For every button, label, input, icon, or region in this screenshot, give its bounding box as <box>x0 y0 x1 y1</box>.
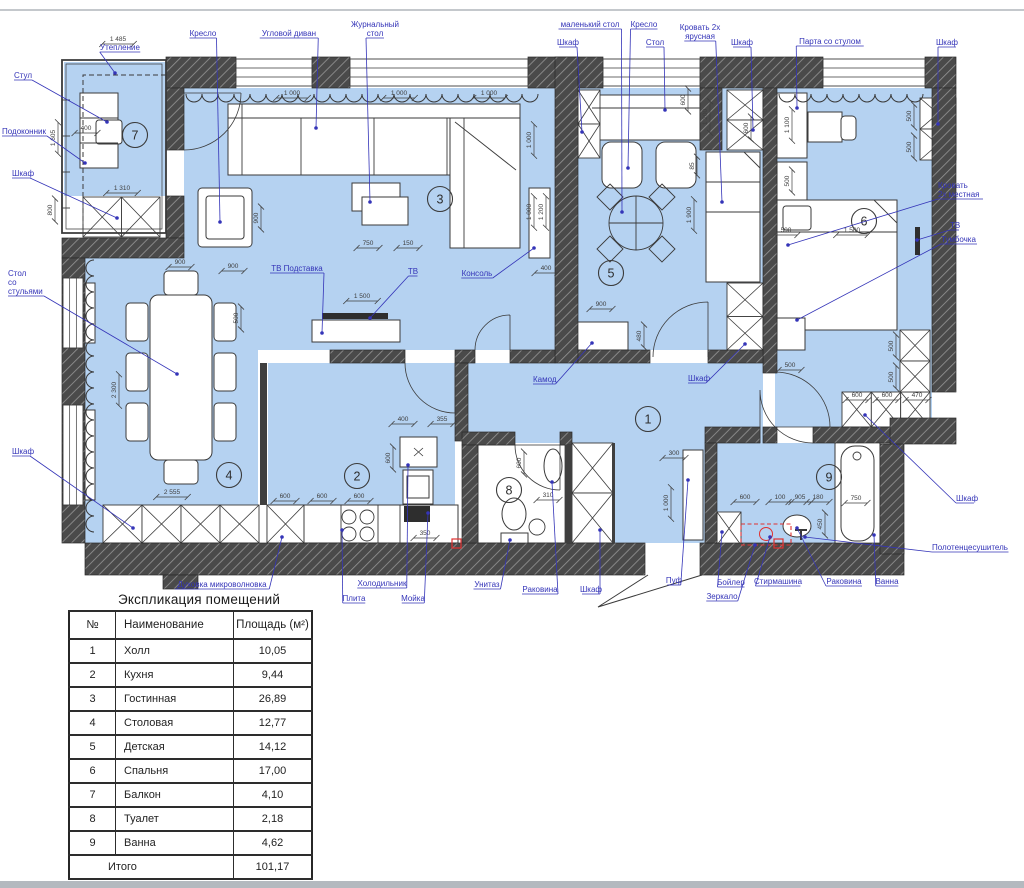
legend-cell: 3 <box>69 687 116 711</box>
legend: Экспликация помещений №НаименованиеПлоща… <box>68 592 313 880</box>
label-leader-dot <box>863 413 867 417</box>
plan-label: Консоль <box>462 269 493 278</box>
plan-label: Тумбочка <box>941 235 976 244</box>
plan-label: Бойлер <box>717 578 745 587</box>
legend-cell: 4,10 <box>234 783 313 807</box>
plan-label: Угловой диван <box>262 29 316 38</box>
wall-thin <box>612 443 615 543</box>
svg-text:355: 355 <box>437 416 448 423</box>
plan-label: ТВ <box>408 267 418 276</box>
legend-row: 4Столовая12,77 <box>69 711 312 735</box>
plan-label: Стирмашина <box>754 577 803 586</box>
svg-text:2 300: 2 300 <box>111 381 118 398</box>
wall <box>708 350 763 363</box>
furniture <box>312 320 400 342</box>
legend-cell: 2 <box>69 663 116 687</box>
legend-row: 9Ванна4,62 <box>69 831 312 855</box>
legend-row: 3Гостинная26,89 <box>69 687 312 711</box>
svg-text:470: 470 <box>912 392 923 399</box>
plan-label: Шкаф <box>12 169 34 178</box>
label-leader-dot <box>786 243 790 247</box>
plan-label: Унитаз <box>474 580 500 589</box>
svg-text:2 555: 2 555 <box>164 489 181 496</box>
furniture <box>529 188 550 258</box>
legend-cell: 9 <box>69 831 116 855</box>
svg-text:600: 600 <box>385 452 392 463</box>
legend-cell: 4,62 <box>234 831 313 855</box>
svg-text:600: 600 <box>852 392 863 399</box>
furniture-dark <box>322 313 388 319</box>
svg-text:600: 600 <box>280 493 291 500</box>
furniture <box>126 353 148 391</box>
svg-text:900: 900 <box>596 301 607 308</box>
wall <box>560 432 572 445</box>
legend-cell: Детская <box>116 735 234 759</box>
svg-text:400: 400 <box>398 416 409 423</box>
label-leader-dot <box>753 543 757 547</box>
plan-label: Ванна <box>875 577 899 586</box>
furniture <box>450 118 520 248</box>
room-number-text: 8 <box>506 483 513 497</box>
window <box>350 59 528 86</box>
svg-text:500: 500 <box>906 110 913 121</box>
svg-text:100: 100 <box>775 494 786 501</box>
plan-label: Столсостульями <box>8 269 43 296</box>
furniture <box>808 112 842 142</box>
label-leader-dot <box>368 316 372 320</box>
label-leader-dot <box>105 120 109 124</box>
wall <box>763 88 777 373</box>
label-leader-dot <box>532 246 536 250</box>
plan-label: Раковина <box>522 585 558 594</box>
label-leader-dot <box>743 342 747 346</box>
legend-total-value: 101,17 <box>234 855 313 879</box>
legend-total-label: Итого <box>69 855 234 879</box>
svg-text:600: 600 <box>743 122 750 133</box>
furniture <box>206 196 244 239</box>
legend-cell: 6 <box>69 759 116 783</box>
legend-total-row: Итого101,17 <box>69 855 312 879</box>
furniture <box>706 152 760 282</box>
wall <box>705 443 717 543</box>
label-leader-dot <box>340 528 344 532</box>
plan-label: Шкаф <box>956 494 978 503</box>
svg-text:400: 400 <box>541 265 552 272</box>
plan-label: Парта со стулом <box>799 37 861 46</box>
legend-cell: Гостинная <box>116 687 234 711</box>
wall <box>700 543 904 575</box>
room-number-text: 7 <box>132 128 139 142</box>
svg-text:750: 750 <box>851 495 862 502</box>
wall <box>510 350 555 363</box>
plan-label: Утепление <box>100 43 140 52</box>
legend-cell: Столовая <box>116 711 234 735</box>
label-leader-dot <box>218 220 222 224</box>
svg-text:500: 500 <box>906 141 913 152</box>
furniture <box>501 533 528 544</box>
svg-text:1 100: 1 100 <box>784 116 791 133</box>
furniture <box>683 450 703 540</box>
svg-text:450: 450 <box>817 518 824 529</box>
legend-cell: 7 <box>69 783 116 807</box>
svg-text:600: 600 <box>516 457 523 468</box>
svg-text:1 200: 1 200 <box>702 108 709 125</box>
label-leader-dot <box>915 238 919 242</box>
svg-text:600: 600 <box>740 494 751 501</box>
svg-text:1 500: 1 500 <box>354 293 371 300</box>
legend-header: Площадь (м²) <box>234 611 313 639</box>
svg-text:900: 900 <box>175 259 186 266</box>
label-leader-dot <box>426 511 430 515</box>
wall <box>700 57 823 88</box>
label-leader-dot <box>590 341 594 345</box>
furniture <box>126 403 148 441</box>
svg-text:1 000: 1 000 <box>481 90 498 97</box>
wall-thin <box>565 445 572 543</box>
svg-text:85: 85 <box>689 162 696 170</box>
svg-text:350: 350 <box>420 530 431 537</box>
label-leader-dot <box>626 166 630 170</box>
furniture <box>164 271 198 295</box>
plan-label: Холодильник <box>358 579 407 588</box>
legend-row: 7Балкон4,10 <box>69 783 312 807</box>
legend-cell: 4 <box>69 711 116 735</box>
svg-text:1 200: 1 200 <box>538 203 545 220</box>
svg-text:1 500: 1 500 <box>844 227 861 234</box>
window <box>603 59 700 86</box>
svg-text:900: 900 <box>253 212 260 223</box>
plan-label: ТВ Подставка <box>271 264 323 273</box>
wall <box>813 427 890 443</box>
legend-row: 6Спальня17,00 <box>69 759 312 783</box>
label-leader-dot <box>795 526 799 530</box>
svg-text:600: 600 <box>317 493 328 500</box>
wall <box>85 543 645 575</box>
plan-label: Духовка микроволновка <box>177 580 267 589</box>
label-leader-dot <box>83 161 87 165</box>
label-leader-dot <box>131 526 135 530</box>
label-leader-dot <box>280 535 284 539</box>
svg-text:500: 500 <box>888 340 895 351</box>
legend-cell: Туалет <box>116 807 234 831</box>
svg-text:480: 480 <box>636 330 643 341</box>
svg-text:600: 600 <box>882 392 893 399</box>
svg-text:310: 310 <box>543 492 554 499</box>
label-leader-dot <box>686 478 690 482</box>
svg-text:1 000: 1 000 <box>663 494 670 511</box>
plan-label: Пуф <box>666 576 683 585</box>
furniture <box>777 318 805 350</box>
wall <box>555 57 578 363</box>
label-leader-dot <box>406 463 410 467</box>
legend-table: №НаименованиеПлощадь (м²) 1Холл10,052Кух… <box>68 610 313 880</box>
label-leader-dot <box>751 128 755 132</box>
plan-label: Стул <box>14 71 32 80</box>
plan-label: Зеркало <box>706 592 738 601</box>
fixture <box>502 498 526 530</box>
svg-text:900: 900 <box>228 263 239 270</box>
legend-cell: 5 <box>69 735 116 759</box>
legend-cell: 8 <box>69 807 116 831</box>
svg-text:500: 500 <box>888 371 895 382</box>
wall-thin <box>260 363 267 505</box>
label-leader-dot <box>175 372 179 376</box>
wall <box>890 418 956 444</box>
fixture <box>544 449 562 483</box>
svg-text:750: 750 <box>363 240 374 247</box>
label-leader-dot <box>113 71 117 75</box>
label-leader-dot <box>768 535 772 539</box>
plan-label: Кресло <box>190 29 217 38</box>
plan-label: Журнальныйстол <box>351 20 399 38</box>
room-number-text: 2 <box>354 469 361 483</box>
wall <box>455 350 475 363</box>
furniture <box>573 322 628 350</box>
svg-text:500: 500 <box>233 312 240 323</box>
wall <box>166 88 184 150</box>
svg-text:1 000: 1 000 <box>526 131 533 148</box>
plan-label: Камод <box>533 375 557 384</box>
legend-table-body: 1Холл10,052Кухня9,443Гостинная26,894Стол… <box>69 639 312 879</box>
legend-cell: 10,05 <box>234 639 313 663</box>
furniture <box>214 403 236 441</box>
plan-label: Шкаф <box>580 585 602 594</box>
label-leader-dot <box>368 200 372 204</box>
furniture <box>214 353 236 391</box>
plan-label: Полотенцесушитель <box>932 543 1008 552</box>
label-leader-dot <box>598 528 602 532</box>
svg-text:1 900: 1 900 <box>686 206 693 223</box>
wall <box>462 432 515 445</box>
label-leader <box>622 29 623 212</box>
label-leader-dot <box>620 210 624 214</box>
plan-label: Подоконник <box>2 127 46 136</box>
furniture <box>407 476 429 498</box>
plan-label: Кровать2х местная <box>938 181 979 199</box>
plan-label: Стол <box>646 38 665 47</box>
plan-label: Шкаф <box>936 38 958 47</box>
wall <box>62 238 184 258</box>
legend-header: Наименование <box>116 611 234 639</box>
window <box>63 405 83 505</box>
svg-text:600: 600 <box>354 493 365 500</box>
svg-text:800: 800 <box>47 204 54 215</box>
fixture <box>783 515 811 537</box>
furniture <box>96 120 122 144</box>
legend-cell: 26,89 <box>234 687 313 711</box>
dimension: 1 605 <box>50 119 61 157</box>
plan-label: Шкаф <box>12 447 34 456</box>
svg-text:500: 500 <box>781 227 792 234</box>
label-leader-dot <box>314 126 318 130</box>
label-leader-dot <box>115 216 119 220</box>
svg-text:905: 905 <box>795 494 806 501</box>
label-leader-dot <box>936 122 940 126</box>
plan-label: Плита <box>343 594 366 603</box>
svg-text:1 310: 1 310 <box>114 185 131 192</box>
plan-label: Раковина <box>826 577 862 586</box>
wall <box>578 350 650 363</box>
svg-text:180: 180 <box>813 494 824 501</box>
legend-cell: 12,77 <box>234 711 313 735</box>
svg-text:600: 600 <box>680 94 687 105</box>
label-leader-dot <box>580 130 584 134</box>
legend-cell: Кухня <box>116 663 234 687</box>
svg-text:500: 500 <box>785 362 796 369</box>
plan-label: Кресло <box>631 20 658 29</box>
svg-text:1 485: 1 485 <box>110 36 127 43</box>
drawing-sheet: 1 4851 6054008001 3101 0001 0001 0009001… <box>0 0 1024 888</box>
legend-cell: 9,44 <box>234 663 313 687</box>
sheet-bottom-edge <box>0 881 1024 888</box>
wall <box>462 445 478 543</box>
wall <box>455 363 468 441</box>
plan-label: Кровать 2хярусная <box>680 23 721 41</box>
furniture <box>150 295 212 460</box>
legend-cell: Балкон <box>116 783 234 807</box>
wall <box>166 57 236 88</box>
svg-text:400: 400 <box>81 125 92 132</box>
furniture <box>841 116 856 140</box>
room-number-text: 9 <box>826 470 833 484</box>
window <box>236 59 312 86</box>
wall <box>705 427 760 443</box>
legend-cell: 2,18 <box>234 807 313 831</box>
plan-label: Шкаф <box>731 38 753 47</box>
legend-row: 1Холл10,05 <box>69 639 312 663</box>
label-leader-dot <box>550 480 554 484</box>
wall <box>925 57 956 88</box>
label-leader-dot <box>795 318 799 322</box>
window <box>823 59 925 86</box>
furniture <box>126 303 148 341</box>
svg-text:150: 150 <box>403 240 414 247</box>
svg-text:1 000: 1 000 <box>526 203 533 220</box>
wall <box>330 350 405 363</box>
legend-title: Экспликация помещений <box>118 592 313 607</box>
label-leader-dot <box>872 533 876 537</box>
svg-text:1 000: 1 000 <box>391 90 408 97</box>
plan-label: Мойка <box>401 594 425 603</box>
door-or-detail <box>598 575 702 607</box>
room-number-text: 1 <box>645 412 652 426</box>
plan-label: ТВ <box>950 221 960 230</box>
dimension: 800 <box>47 196 58 225</box>
room-number-text: 5 <box>608 266 615 280</box>
label-leader-dot <box>508 538 512 542</box>
legend-row: 2Кухня9,44 <box>69 663 312 687</box>
room-number-text: 4 <box>226 468 233 482</box>
svg-text:500: 500 <box>784 175 791 186</box>
legend-header: № <box>69 611 116 639</box>
svg-text:1 605: 1 605 <box>50 129 57 146</box>
legend-cell: Спальня <box>116 759 234 783</box>
label-leader-dot <box>803 535 807 539</box>
legend-table-head: №НаименованиеПлощадь (м²) <box>69 611 312 639</box>
legend-cell: 14,12 <box>234 735 313 759</box>
legend-cell: Холл <box>116 639 234 663</box>
label-leader-dot <box>720 530 724 534</box>
svg-text:300: 300 <box>669 450 680 457</box>
wall <box>880 444 904 554</box>
legend-row: 8Туалет2,18 <box>69 807 312 831</box>
furniture <box>85 410 95 500</box>
legend-cell: Ванна <box>116 831 234 855</box>
furniture <box>164 460 198 484</box>
legend-cell: 17,00 <box>234 759 313 783</box>
wall <box>166 196 184 238</box>
label-leader-dot <box>320 331 324 335</box>
legend-row: 5Детская14,12 <box>69 735 312 759</box>
svg-text:1 000: 1 000 <box>284 90 301 97</box>
room-number-text: 3 <box>437 192 444 206</box>
wall <box>763 427 777 443</box>
label-leader-dot <box>663 108 667 112</box>
plan-label: маленький стол <box>561 20 620 29</box>
label-leader-dot <box>795 106 799 110</box>
plan-label: Шкаф <box>557 38 579 47</box>
legend-cell: 1 <box>69 639 116 663</box>
label-leader-dot <box>720 200 724 204</box>
